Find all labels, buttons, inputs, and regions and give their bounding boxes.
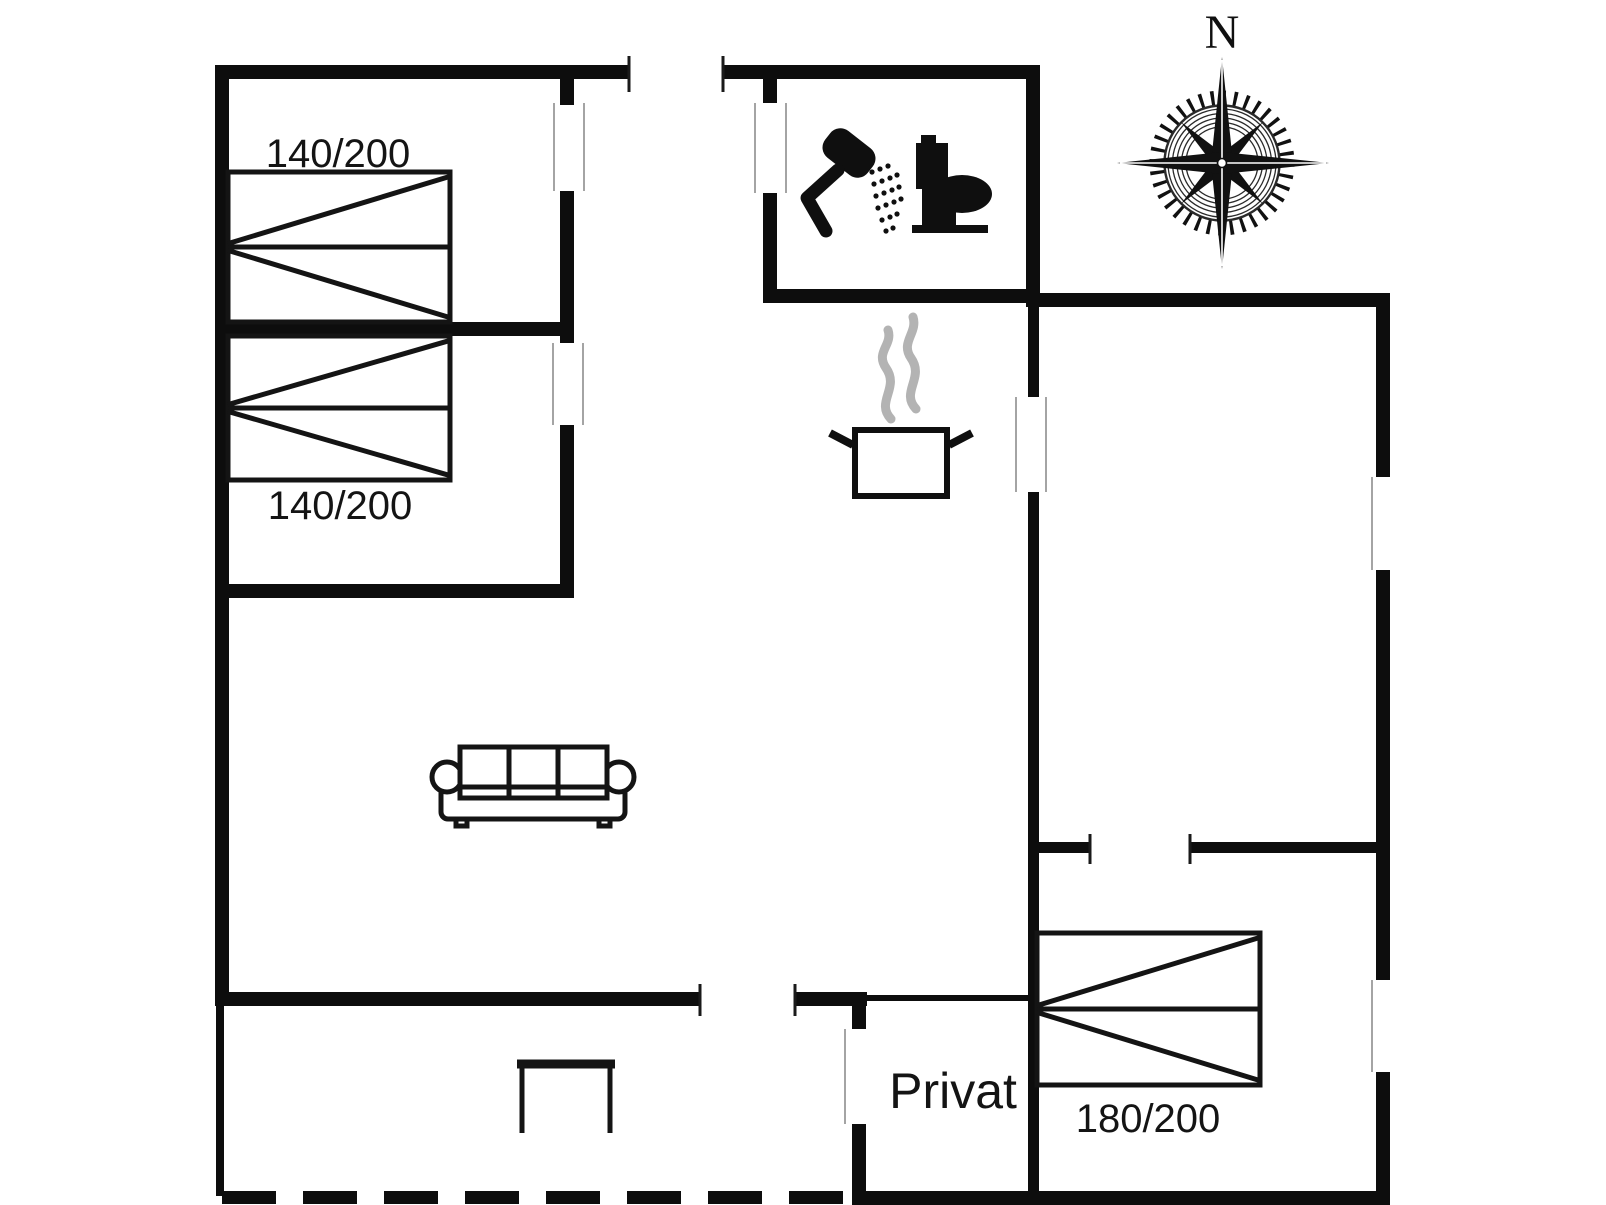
floor-plan-canvas: N 140/200 140/200 180/200 Privat	[0, 0, 1606, 1205]
wall-segment-living-bottom-a	[215, 992, 700, 1006]
wall-segment-left-terrace	[216, 1006, 224, 1196]
wall-segment-divider-b	[1190, 842, 1390, 853]
double-bed-icon	[228, 172, 450, 322]
wall-segment-bath-right	[1026, 65, 1040, 303]
private-room-label: Privat	[889, 1063, 1017, 1119]
wall-segment-bath-bottom	[763, 289, 1040, 303]
floor-plan: N 140/200 140/200 180/200 Privat	[0, 0, 1606, 1205]
compass-hub	[1218, 159, 1227, 168]
wall-segment-right-a	[1376, 293, 1390, 477]
sofa-icon	[432, 747, 634, 826]
wall-segment-bedrooms-right-b	[560, 191, 574, 343]
compass-north-label: N	[1205, 6, 1240, 59]
pot-body	[855, 430, 947, 496]
sofa-cushions	[460, 747, 607, 798]
double-bed-icon	[228, 336, 450, 480]
wall-segment-kitchen-stub	[1028, 307, 1039, 397]
wall-segment-right-c	[1376, 1072, 1390, 1205]
bed-size-label-right: 180/200	[1076, 1097, 1221, 1141]
wall-segment-bedrooms-right-a	[560, 65, 574, 105]
wall-segment-bath-left-b	[763, 193, 777, 303]
wall-segment-top-right	[722, 65, 1040, 79]
double-bed-icon	[1037, 933, 1260, 1085]
wall-segment-privat-top	[866, 995, 1032, 1001]
bed-size-label-top: 140/200	[266, 132, 411, 176]
bed-size-label-bottom: 140/200	[268, 484, 413, 528]
toilet-base	[912, 225, 988, 233]
wall-segment-bath-left-a	[763, 79, 777, 103]
wall-segment-rightroom-top	[1026, 293, 1390, 307]
wall-segment-bottom-solid	[855, 1191, 1390, 1205]
toilet-button	[921, 135, 936, 144]
wall-segment-divider-a	[1032, 842, 1090, 853]
toilet-pedestal	[922, 186, 956, 228]
wall-segment-bedrooms-bottom	[222, 584, 574, 598]
wall-segment-bedrooms-right-c	[560, 425, 574, 598]
wall-segment-right-b	[1376, 570, 1390, 980]
wall-segment-privat-left-b	[852, 1124, 866, 1205]
wall-segment-privat-left-a	[852, 992, 866, 1029]
